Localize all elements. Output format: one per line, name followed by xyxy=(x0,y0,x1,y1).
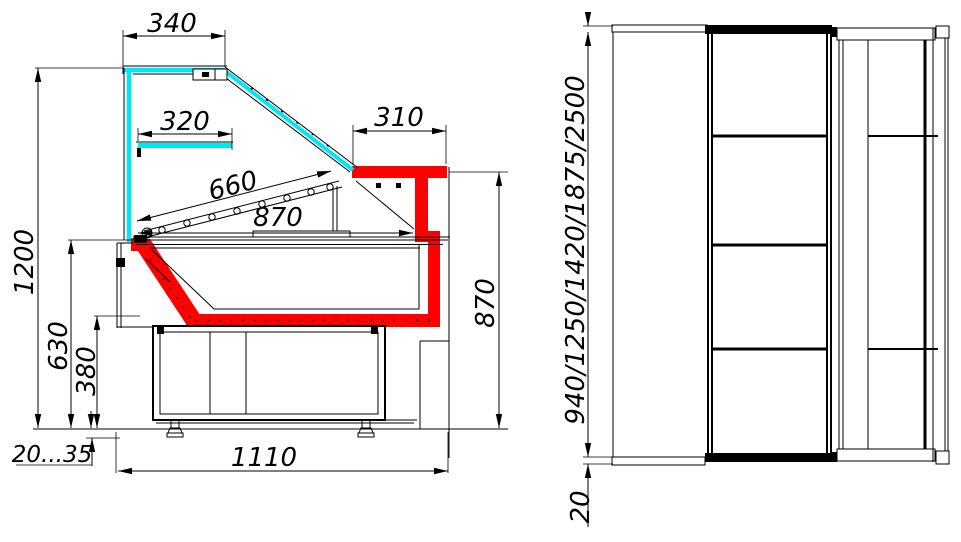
dim-deck-depth: 870 xyxy=(253,203,303,233)
dim-base-depth: 1110 xyxy=(231,443,297,473)
glass-outlines xyxy=(123,66,358,240)
dim-rear-height: 870 xyxy=(471,278,501,328)
dim-leg-adjust-range: 20...35 xyxy=(12,442,92,468)
red-profile xyxy=(130,166,447,327)
dim-base-height: 380 xyxy=(72,346,102,396)
plan-dimensions: 940/1250/1420/1875/2500 20 xyxy=(561,17,613,527)
dim-length-options: 940/1250/1420/1875/2500 xyxy=(561,75,591,424)
dim-worktop-height: 630 xyxy=(44,321,74,371)
drawing-canvas: 340 320 310 660 870 1200 630 xyxy=(0,0,961,542)
plan-body xyxy=(612,25,949,465)
dim-inner-shelf-width: 320 xyxy=(160,107,210,137)
section-view: 340 320 310 660 870 1200 630 xyxy=(10,9,508,473)
dim-overall-height: 1200 xyxy=(10,229,40,295)
sloped-glass xyxy=(225,71,353,170)
dim-end-overhang: 20 xyxy=(566,490,596,523)
dim-rear-shelf-width: 310 xyxy=(374,103,424,133)
dim-canopy-width: 340 xyxy=(147,9,197,39)
dim-display-glass-length: 660 xyxy=(205,166,261,207)
technical-drawing: 340 320 310 660 870 1200 630 xyxy=(0,0,961,542)
plan-view: 940/1250/1420/1875/2500 20 xyxy=(561,17,949,527)
lamp-housing xyxy=(193,69,227,80)
